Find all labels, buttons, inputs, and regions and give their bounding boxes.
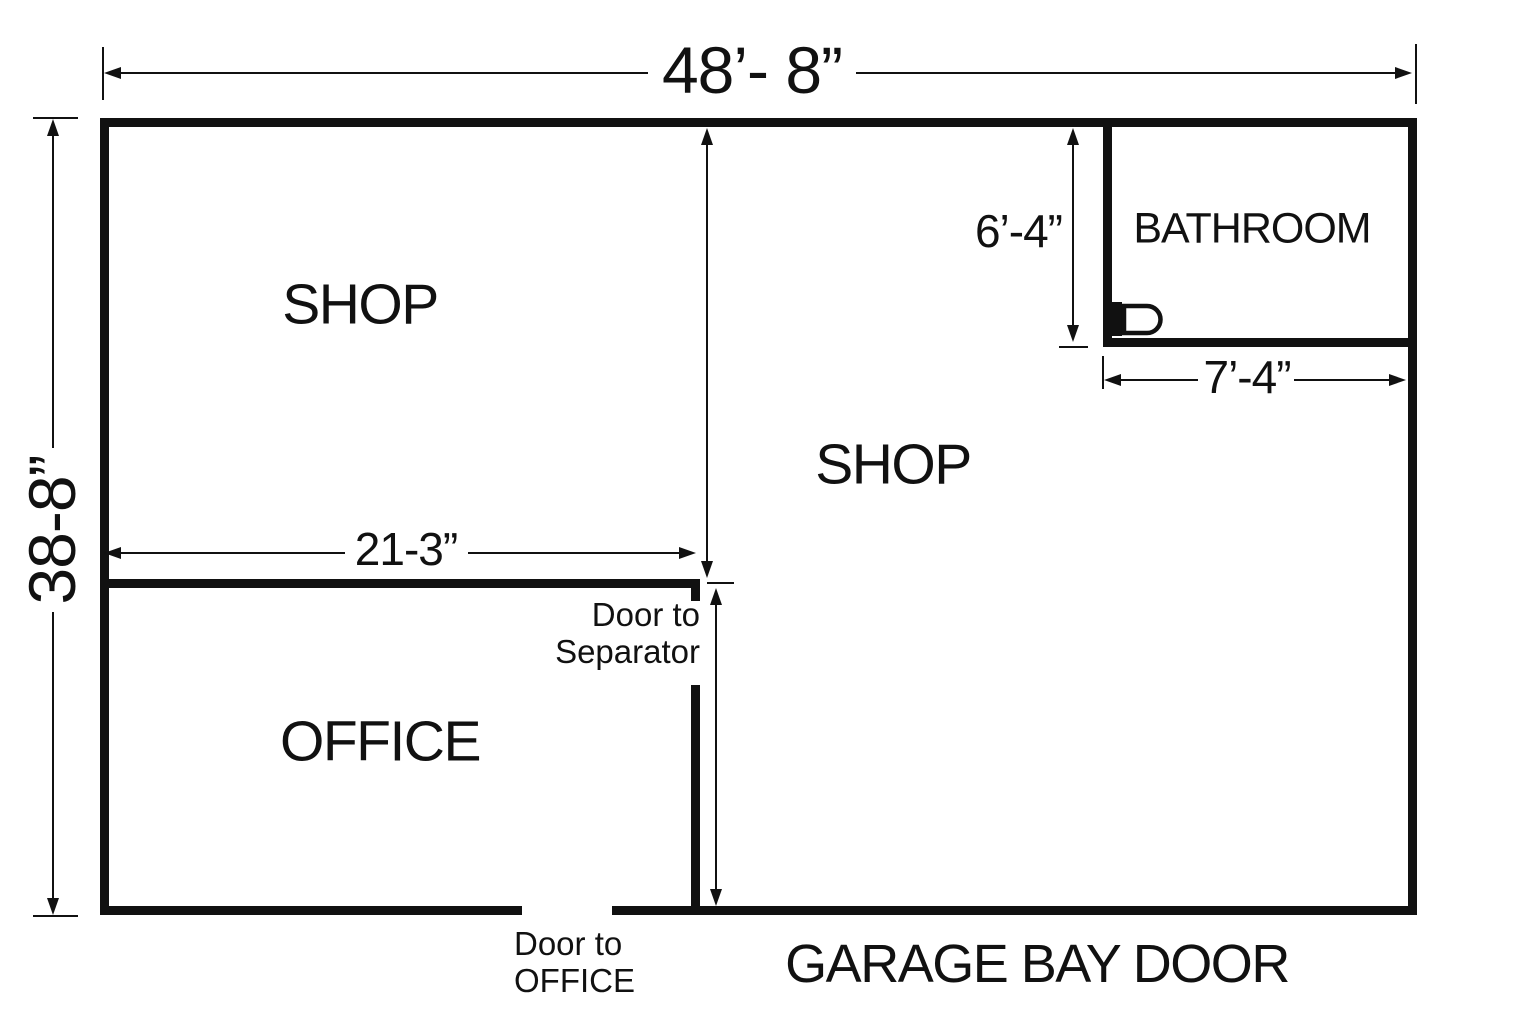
left-wall (100, 118, 109, 915)
bottom-wall-left-segment (100, 906, 522, 915)
overall-height-dimension: 38-8” (19, 455, 85, 604)
bathroom-left-wall (1103, 118, 1112, 347)
door-to-office-line2: OFFICE (514, 963, 635, 1000)
floor-plan-drawing (0, 0, 1536, 1024)
partition-dim-arrow-right (679, 547, 696, 559)
room-label-shop-main: SHOP (815, 437, 971, 494)
overall-width-dimension: 48’- 8” (662, 37, 842, 103)
right-wall (1408, 118, 1417, 915)
door-to-separator-line2: Separator (555, 634, 700, 671)
shop-height-dim-arrow-down (701, 561, 713, 578)
floor-plan: 48’- 8” 38-8” 21-3” 6’-4” 7’-4” SHOP SHO… (0, 0, 1536, 1024)
bottom-wall-right-segment (612, 906, 1417, 915)
room-label-shop-upper-left: SHOP (282, 277, 438, 334)
separator-dim-arrow-down (710, 889, 722, 906)
width-dim-arrow-right (1395, 67, 1412, 79)
separator-wall (691, 685, 700, 915)
height-dim-arrow-up (47, 119, 59, 136)
door-to-separator-line1: Door to (555, 597, 700, 634)
bathroom-width-dimension: 7’-4” (1203, 354, 1290, 400)
room-label-bathroom: BATHROOM (1133, 208, 1370, 251)
height-dim-arrow-down (47, 898, 59, 915)
separator-dim-arrow-up (710, 588, 722, 605)
bathroom-bottom-wall (1103, 338, 1417, 347)
bathroom-height-dimension: 6’-4” (975, 208, 1062, 254)
partition-width-dimension: 21-3” (355, 526, 457, 572)
door-to-separator-label: Door to Separator (555, 597, 700, 671)
door-to-office-line1: Door to (514, 926, 635, 963)
bathroom-height-dim-arrow-down (1067, 325, 1079, 342)
shop-height-dim-arrow-up (701, 128, 713, 145)
bathroom-height-dim-arrow-up (1067, 128, 1079, 145)
door-to-office-label: Door to OFFICE (514, 926, 635, 1000)
width-dim-arrow-left (104, 67, 121, 79)
bathroom-width-dim-arrow-left (1104, 374, 1121, 386)
toilet-bowl-icon (1124, 306, 1161, 333)
toilet-icon (1111, 302, 1122, 336)
top-wall (100, 118, 1417, 127)
garage-bay-door-label: GARAGE BAY DOOR (785, 937, 1289, 991)
office-top-wall (100, 579, 700, 588)
bathroom-width-dim-arrow-right (1389, 374, 1406, 386)
room-label-office: OFFICE (280, 714, 480, 771)
